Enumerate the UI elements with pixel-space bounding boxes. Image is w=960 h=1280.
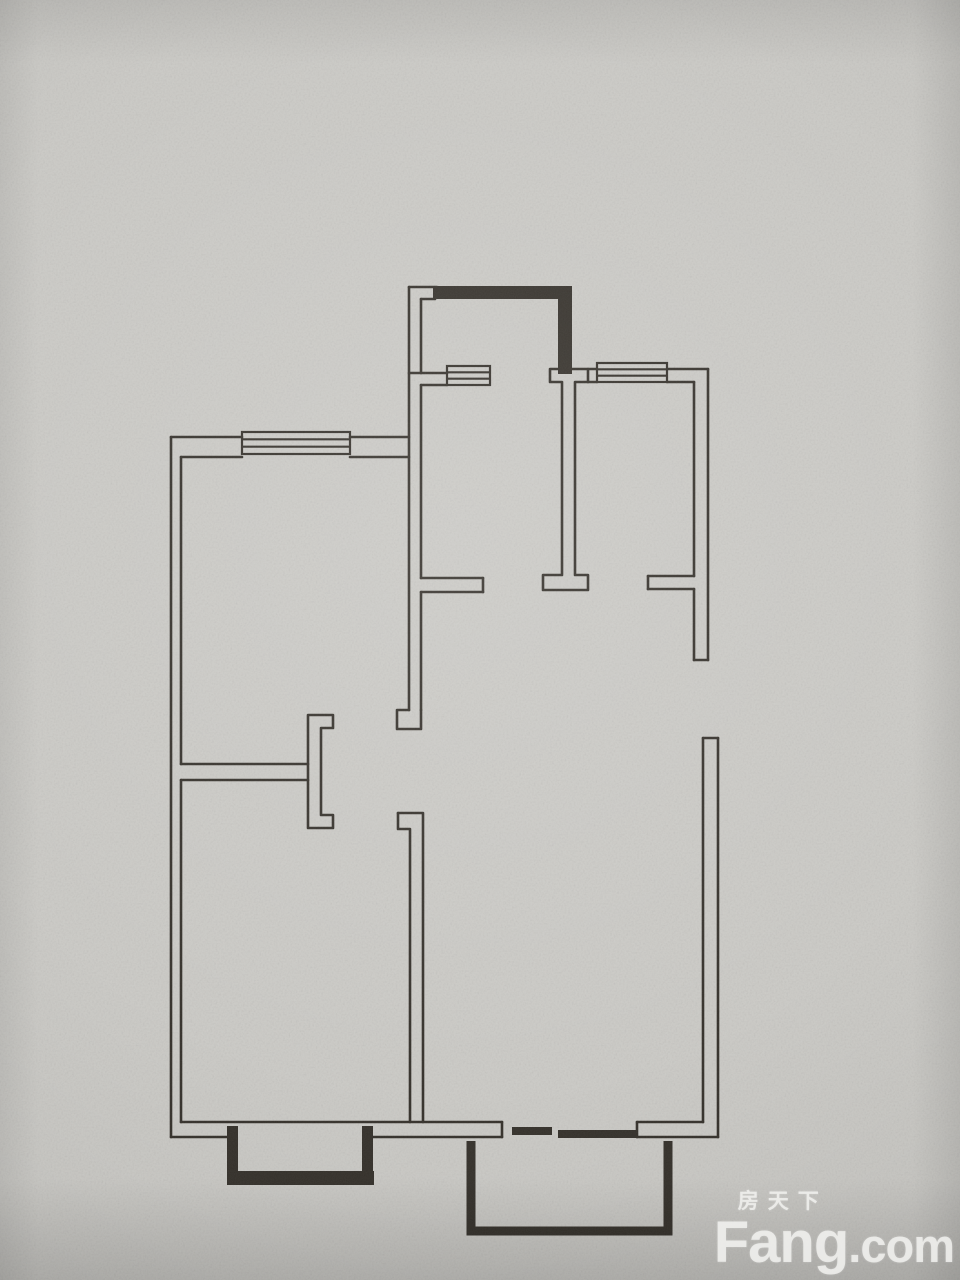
bay-bottom [227, 1171, 374, 1185]
floor-plan-svg [0, 0, 960, 1280]
watermark-fang-text: Fang [714, 1210, 849, 1275]
bedroom-door-post [308, 715, 333, 828]
south-balcony [471, 1141, 668, 1231]
living-west-wall-left [398, 813, 410, 1122]
north-balcony-top [433, 286, 572, 299]
window-west-bedroom [242, 432, 350, 454]
hall-i-beam-wall [543, 369, 588, 590]
window-kitchen [447, 366, 490, 385]
watermark-logo-text: Fang.com [714, 1214, 954, 1272]
floor-plan-photo: 房天下 Fang.com [0, 0, 960, 1280]
north-balcony-right [558, 286, 572, 374]
window-northeast-room [597, 363, 667, 382]
corridor-wall-foot [397, 710, 421, 729]
bay-right [362, 1126, 373, 1173]
balcony-door-bar-b [558, 1130, 638, 1138]
fang-watermark: 房天下 Fang.com [714, 1191, 954, 1272]
watermark-chinese-text: 房天下 [738, 1191, 954, 1212]
watermark-com-text: .com [848, 1219, 954, 1272]
bay-left [227, 1126, 238, 1173]
balcony-door-bar-a [512, 1127, 552, 1135]
